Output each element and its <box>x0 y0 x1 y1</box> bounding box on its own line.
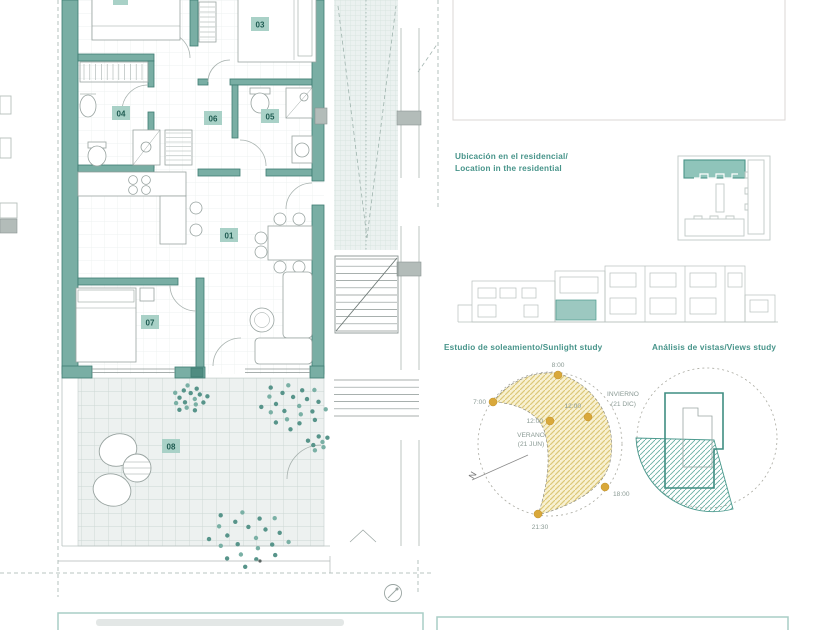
location-section: Ubicación en el residencial/ Location in… <box>455 152 770 240</box>
room-label-01: 01 <box>220 228 238 242</box>
dimension-line <box>58 556 330 573</box>
plan-drawing: 01 03 04 05 06 07 08 Ubicación en el res… <box>0 0 840 630</box>
time-8: 8:00 <box>552 362 565 369</box>
svg-text:07: 07 <box>146 319 155 328</box>
location-title-es: Ubicación en el residencial/ <box>455 152 569 161</box>
svg-text:N: N <box>467 470 479 481</box>
site-plan-highlight-unit <box>684 160 745 178</box>
room-label-08: 08 <box>162 439 180 453</box>
elevation-highlight-unit <box>556 300 596 320</box>
adjacent-structure-band <box>334 0 398 250</box>
north-arrow: N <box>467 455 528 481</box>
time-7: 7:00 <box>473 399 486 406</box>
room-label-02-cutoff <box>113 0 128 5</box>
time-2130: 21:30 <box>532 524 549 531</box>
architectural-plan-sheet: { "floor_plan": { "room_labels": [ {"lab… <box>0 0 840 630</box>
room-label-03: 03 <box>251 17 269 31</box>
footer-text-placeholder <box>96 619 344 626</box>
winter-name: INVIERNO <box>607 391 639 398</box>
views-study-title: Análisis de vistas/Views study <box>652 343 776 352</box>
sunlight-study: Estudio de soleamiento/Sunlight study 8:… <box>444 343 639 531</box>
svg-text:01: 01 <box>225 232 234 241</box>
time-18: 18:00 <box>613 491 630 498</box>
svg-text:05: 05 <box>266 113 275 122</box>
svg-text:06: 06 <box>209 115 218 124</box>
header-box <box>453 0 785 120</box>
summer-date: (21 JUN) <box>518 441 544 448</box>
room-label-05: 05 <box>261 109 279 123</box>
room-label-06: 06 <box>204 111 222 125</box>
floor-plan: 01 03 04 05 06 07 08 <box>0 0 438 602</box>
sunlight-study-title: Estudio de soleamiento/Sunlight study <box>444 343 603 352</box>
room-label-07: 07 <box>141 315 159 329</box>
compass-icon <box>385 585 402 602</box>
svg-text:08: 08 <box>167 443 176 452</box>
footer-boxes <box>58 613 788 630</box>
svg-text:04: 04 <box>117 110 126 119</box>
time-12-summer: 12:00 <box>526 418 543 425</box>
location-title-en: Location in the residential <box>455 164 562 173</box>
site-plan <box>678 156 770 240</box>
views-study: Análisis de vistas/Views study <box>636 343 777 512</box>
svg-text:03: 03 <box>256 21 265 30</box>
footer-box-right <box>437 617 788 630</box>
time-12-winter: 12:00 <box>564 403 581 410</box>
elevation-drawing <box>458 266 778 322</box>
winter-date: (21 DIC) <box>611 401 636 408</box>
summer-name: VERANO <box>517 432 545 439</box>
stairs <box>334 256 419 542</box>
room-label-04: 04 <box>112 106 130 120</box>
wall-marker <box>315 108 327 124</box>
sun-crescent-hatch <box>493 373 612 515</box>
